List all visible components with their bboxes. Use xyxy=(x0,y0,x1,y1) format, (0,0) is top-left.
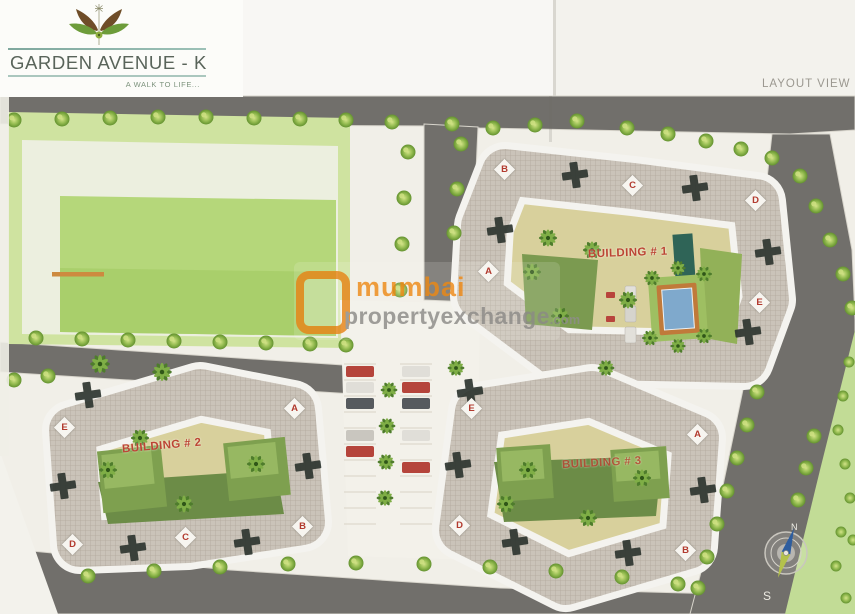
wing-marker-b2-C: C xyxy=(178,530,193,545)
wing-letter: B xyxy=(682,546,689,556)
watermark: mumbai propertyexchange.com xyxy=(294,262,560,340)
wing-marker-b2-E: E xyxy=(57,420,72,435)
watermark-brand-line2: propertyexchange.com xyxy=(344,305,581,328)
project-tagline: A WALK TO LIFE... xyxy=(8,80,200,89)
building-cluster-3 xyxy=(462,394,696,582)
watermark-logo-icon xyxy=(296,271,350,334)
wing-letter: B xyxy=(299,522,306,532)
wing-letter: C xyxy=(182,533,189,543)
wing-marker-b1-B: B xyxy=(497,162,512,177)
logo-divider xyxy=(8,48,206,50)
wing-letter: A xyxy=(694,430,701,440)
swimming-pool xyxy=(648,274,708,342)
compass-south-label: S xyxy=(763,589,771,603)
wing-letter: D xyxy=(456,521,463,531)
project-title: GARDEN AVENUE - K xyxy=(10,52,207,74)
watermark-brand2: propertyexchange xyxy=(344,303,550,329)
wing-letter: D xyxy=(752,196,759,206)
wing-marker-b3-D: D xyxy=(452,518,467,533)
wing-letter: A xyxy=(485,267,492,277)
plant-logo-icon xyxy=(60,1,138,47)
wing-marker-b1-A: A xyxy=(481,264,496,279)
watermark-brand: mumbai xyxy=(356,274,466,301)
wing-marker-b3-A: A xyxy=(690,427,705,442)
wing-marker-b2-A: A xyxy=(287,401,302,416)
logo-divider xyxy=(8,75,206,77)
layout-view-label: LAYOUT VIEW xyxy=(762,78,851,90)
fold-crease xyxy=(553,0,556,97)
project-logo: GARDEN AVENUE - K A WALK TO LIFE... xyxy=(0,0,243,97)
garden-bench xyxy=(52,272,104,277)
wing-letter: E xyxy=(468,404,474,414)
wing-marker-b3-B: B xyxy=(678,543,693,558)
wing-letter: D xyxy=(69,540,76,550)
wing-letter: A xyxy=(291,404,298,414)
watermark-domain: .com xyxy=(550,313,581,327)
wing-marker-b2-D: D xyxy=(65,537,80,552)
wing-letter: E xyxy=(756,298,762,308)
layout-brochure-scan: N S GARDEN AVENUE - K A WALK TO LIFE... … xyxy=(0,0,855,614)
wing-marker-b3-E: E xyxy=(464,401,479,416)
wing-marker-b2-B: B xyxy=(295,519,310,534)
wing-marker-b1-E: E xyxy=(752,295,767,310)
wing-marker-b1-D: D xyxy=(748,193,763,208)
wing-letter: C xyxy=(629,181,636,191)
wing-letter: B xyxy=(501,165,508,175)
compass-north-label: N xyxy=(791,522,798,532)
wing-letter: E xyxy=(61,423,67,433)
wing-marker-b1-C: C xyxy=(625,178,640,193)
